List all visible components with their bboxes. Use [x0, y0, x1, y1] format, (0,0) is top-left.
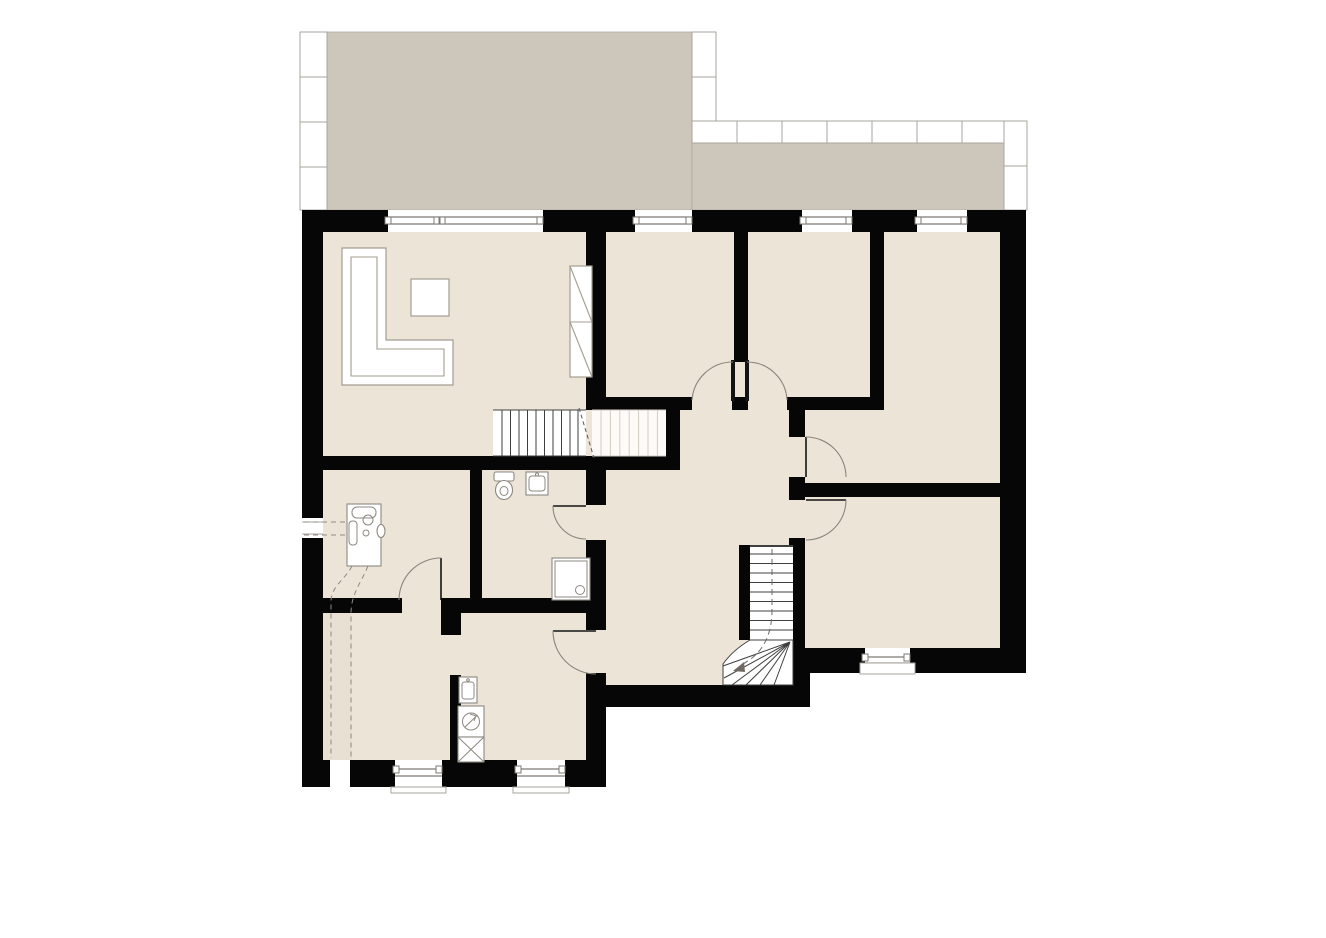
- wall-top-4: [852, 210, 917, 232]
- terrace-surface-right: [692, 143, 1004, 210]
- water-heater: [347, 504, 385, 566]
- upper-stair-flight: [493, 410, 586, 456]
- wall-right: [1000, 210, 1026, 673]
- wall-storage-kitchen-stub: [441, 598, 461, 635]
- window-living: [385, 210, 543, 232]
- wardrobe-cabinet: [570, 266, 592, 377]
- wall-left-lower: [302, 538, 323, 787]
- window-bedroom-left: [633, 210, 692, 232]
- wall-top-2: [543, 210, 635, 232]
- window-kitchen: [513, 760, 569, 793]
- shower-tray: [552, 558, 590, 600]
- wall-utility-bottom: [323, 598, 402, 613]
- wall-bedroom-divider: [734, 232, 748, 362]
- wall-lower-stair-left: [739, 545, 750, 640]
- window-room-right-bottom: [860, 648, 915, 674]
- terrace-surface-left: [327, 32, 692, 210]
- floor-plan-canvas: [0, 0, 1326, 938]
- wall-bottom-left-1: [302, 760, 330, 787]
- window-bedroom-right: [800, 210, 852, 232]
- window-room-right-top: [915, 210, 967, 232]
- terrace-tile-border-left: [300, 32, 327, 210]
- wall-bottom-left-2: [350, 760, 395, 787]
- washing-machine: [458, 706, 484, 737]
- outside-area-step: [810, 673, 1026, 707]
- wall-right-rooms-divider: [800, 483, 1026, 497]
- wall-hall-top-1: [586, 397, 692, 410]
- service-strip-shading: [323, 613, 352, 760]
- wall-bathroom-left: [470, 456, 482, 613]
- floor-plan-drawing: [0, 0, 1326, 938]
- wall-left-upper: [302, 210, 323, 518]
- wall-bottom-middle: [602, 685, 810, 707]
- terrace-tile-border-top-row: [692, 121, 1004, 143]
- wash-basin: [526, 472, 548, 495]
- window-storage-room: [391, 760, 446, 793]
- coffee-table: [411, 279, 449, 316]
- upper-staircase: [493, 408, 666, 458]
- kitchen-sink: [459, 677, 477, 703]
- wall-bedroom-rightroom-divider: [870, 232, 884, 410]
- stove-hob: [458, 737, 484, 762]
- terrace: [300, 32, 1027, 210]
- wall-kitchen-right: [586, 673, 606, 787]
- wall-hall-right-1: [789, 410, 805, 437]
- wall-bottom-right: [810, 648, 1026, 673]
- terrace-tile-border-top-right-column: [692, 32, 716, 121]
- wall-hall-top-3: [787, 397, 884, 410]
- toilet: [494, 472, 514, 500]
- terrace-tile-border-right-column: [1004, 121, 1027, 210]
- opening-bottom-left: [330, 760, 350, 787]
- wall-under-living: [323, 456, 680, 470]
- wall-upper-stair-right: [666, 410, 680, 470]
- wall-bottom-left-3: [442, 760, 517, 787]
- outside-area-bottom: [604, 707, 1026, 787]
- wall-top-3: [692, 210, 802, 232]
